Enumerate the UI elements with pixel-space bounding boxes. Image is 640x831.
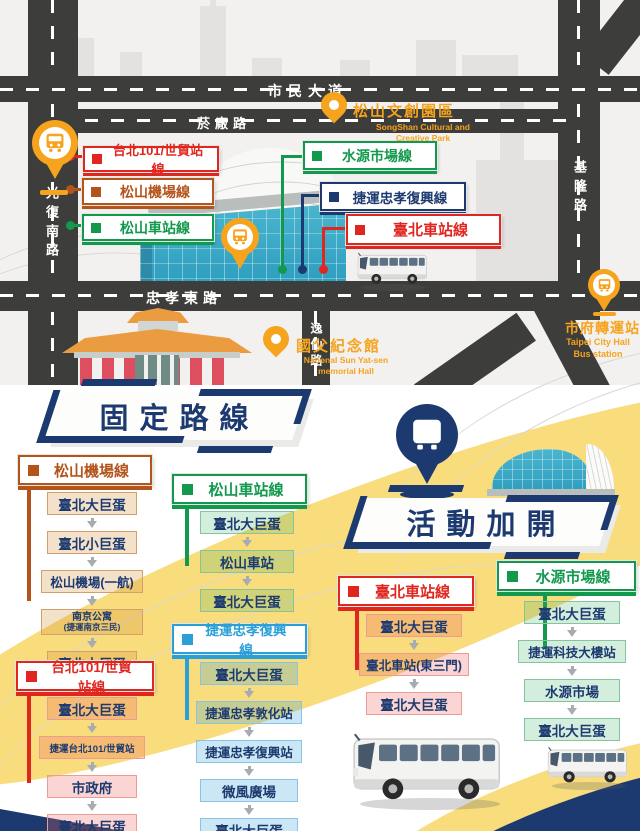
coach-bus-large xyxy=(350,728,502,804)
down-arrow-icon xyxy=(243,766,255,776)
bus-icon xyxy=(231,228,249,246)
down-arrow-icon xyxy=(241,576,253,586)
map-label-taipei101: 台北101/世貿站線 xyxy=(83,146,219,172)
stop-chip: 捷運台北101/世貿站 xyxy=(39,736,145,759)
title-slash xyxy=(388,485,464,492)
poi-name-cityhall: 市府轉運站 xyxy=(565,318,640,338)
stop-chip: 臺北大巨蛋 xyxy=(366,692,462,715)
route-bullet xyxy=(91,187,101,197)
route-stops-shuiyuan: 臺北大巨蛋 捷運科技大樓站 水源市場 臺北大巨蛋 xyxy=(518,601,626,741)
route-bullet xyxy=(28,465,39,476)
down-arrow-icon xyxy=(408,640,420,650)
poi-name-sunyatsen: 國父紀念館 xyxy=(296,335,381,356)
down-arrow-icon xyxy=(86,723,98,733)
stop-chip: 市政府 xyxy=(47,775,137,798)
poi-en: Bus station xyxy=(556,349,640,359)
poi-name-songshan-park: 松山文創園區 xyxy=(353,100,455,121)
map-section: 市民大道 菸廠路 光復南路 忠孝東路 基隆路 逸仙路 台北101/世貿站線 松山… xyxy=(0,0,640,385)
map-label-songshan-station: 松山車站線 xyxy=(82,214,214,241)
route-bullet xyxy=(91,223,101,233)
route-line xyxy=(27,687,31,783)
route-line xyxy=(27,481,31,601)
down-arrow-icon xyxy=(408,679,420,689)
map-label-airport: 松山機場線 xyxy=(82,178,214,205)
stop-chip: 臺北大巨蛋 xyxy=(200,589,294,612)
poi-en: memorial Hall xyxy=(290,366,402,376)
bus-stop-pin-dome xyxy=(221,218,259,272)
bus-stop-pin-guangfu xyxy=(32,120,78,186)
stop-chip: 臺北大巨蛋 xyxy=(524,601,620,624)
route-bullet xyxy=(355,225,365,235)
down-arrow-icon xyxy=(243,688,255,698)
route-bullet xyxy=(329,192,339,202)
bus-icon xyxy=(597,278,612,293)
stop-dot xyxy=(278,265,287,274)
road-keelung-dash xyxy=(577,0,580,300)
down-arrow-icon xyxy=(86,801,98,811)
route-stops-airport: 臺北大巨蛋 臺北小巨蛋 松山機場(一航) 南京公寓(捷運南京三民) 臺北大巨蛋 xyxy=(40,492,144,674)
route-line xyxy=(185,650,189,720)
fixed-routes-title: 固定路線 xyxy=(48,392,300,440)
down-arrow-icon xyxy=(86,518,98,528)
stop-chip: 臺北大巨蛋 xyxy=(200,818,298,831)
bus-icon xyxy=(409,417,445,453)
title-slash xyxy=(81,379,157,386)
stop-dot xyxy=(298,265,307,274)
down-arrow-icon xyxy=(243,805,255,815)
road-label-keelung: 基隆路 xyxy=(570,160,589,217)
stop-chip: 捷運科技大樓站 xyxy=(518,640,626,663)
route-stops-songshan-station: 臺北大巨蛋 松山車站 臺北大巨蛋 xyxy=(197,511,297,612)
poi-en: SongShan Cultural and xyxy=(350,122,496,132)
skyline-spire xyxy=(210,0,216,12)
down-arrow-icon xyxy=(86,762,98,772)
stop-chip: 南京公寓(捷運南京三民) xyxy=(41,609,143,635)
stop-chip: 臺北大巨蛋 xyxy=(200,511,294,534)
connector xyxy=(281,155,304,158)
map-label-shuiyuan: 水源市場線 xyxy=(303,141,437,170)
poi-pin-sunyatsen xyxy=(258,321,295,358)
road-label-tobacco: 菸廠路 xyxy=(197,113,251,132)
route-header-taipei101: 台北101/世貿站線 xyxy=(16,661,154,691)
stop-chip: 松山機場(一航) xyxy=(41,570,143,593)
coach-bus-small xyxy=(546,744,628,785)
route-bullet xyxy=(507,571,518,582)
route-header-airport: 松山機場線 xyxy=(18,455,152,485)
title-slash xyxy=(197,446,273,453)
road-diagonal-left xyxy=(414,313,536,385)
stop-chip: 臺北大巨蛋 xyxy=(47,492,137,515)
stop-chip: 微風廣場 xyxy=(200,779,298,802)
stop-dash xyxy=(40,190,68,195)
stop-chip: 臺北大巨蛋 xyxy=(47,814,137,831)
connector xyxy=(301,194,321,197)
poi-en: Creative Park xyxy=(350,133,496,143)
road-label-guangfu: 光復南路 xyxy=(42,186,61,262)
route-bullet xyxy=(312,151,322,161)
stop-chip: 臺北車站(東三門) xyxy=(359,653,469,676)
down-arrow-icon xyxy=(86,638,98,648)
map-label-taipei-station: 臺北車站線 xyxy=(346,214,501,245)
poi-en: Taipei City Hall xyxy=(556,337,640,347)
section-title: 活動加開 xyxy=(355,498,607,546)
stop-chip: 臺北大巨蛋 xyxy=(366,614,462,637)
road-zhongxiao-dash xyxy=(0,294,640,297)
down-arrow-icon xyxy=(566,627,578,637)
stop-chip: 水源市場 xyxy=(524,679,620,702)
route-header-mrt-fuxing: 捷運忠孝復興線 xyxy=(172,624,307,654)
route-stops-taipei-station: 臺北大巨蛋 臺北車站(東三門) 臺北大巨蛋 xyxy=(359,614,469,715)
down-arrow-icon xyxy=(566,705,578,715)
stop-chip: 臺北大巨蛋 xyxy=(524,718,620,741)
connector xyxy=(301,194,304,268)
road-label-zhongxiao: 忠孝東路 xyxy=(146,288,222,308)
route-bullet xyxy=(26,671,37,682)
route-stops-taipei101: 臺北大巨蛋 捷運台北101/世貿站 市政府 臺北大巨蛋 xyxy=(40,697,144,831)
connector xyxy=(322,227,325,268)
transit-infographic: 市民大道 菸廠路 光復南路 忠孝東路 基隆路 逸仙路 台北101/世貿站線 松山… xyxy=(0,0,640,831)
route-line xyxy=(185,500,189,566)
stop-chip: 臺北大巨蛋 xyxy=(200,662,298,685)
event-routes-title: 活動加開 xyxy=(355,498,607,546)
coach-bus xyxy=(356,250,428,286)
route-header-songshan-station: 松山車站線 xyxy=(172,474,307,504)
down-arrow-icon xyxy=(243,727,255,737)
bus-stop-pin-cityhall xyxy=(588,269,620,315)
stop-dot xyxy=(66,221,75,230)
stop-chip: 捷運忠孝復興站 xyxy=(196,740,302,763)
down-arrow-icon xyxy=(86,557,98,567)
down-arrow-icon xyxy=(86,596,98,606)
route-stops-mrt-fuxing: 臺北大巨蛋 捷運忠孝敦化站 捷運忠孝復興站 微風廣場 臺北大巨蛋 xyxy=(195,662,303,831)
title-slash xyxy=(504,552,580,559)
route-bullet xyxy=(182,484,193,495)
down-arrow-icon xyxy=(241,537,253,547)
stop-dot xyxy=(319,265,328,274)
route-header-taipei-station: 臺北車站線 xyxy=(338,576,474,606)
connector xyxy=(281,155,284,268)
route-header-shuiyuan: 水源市場線 xyxy=(497,561,636,591)
stop-chip: 捷運忠孝敦化站 xyxy=(196,701,302,724)
bus-icon xyxy=(44,132,66,154)
down-arrow-icon xyxy=(566,666,578,676)
route-bullet xyxy=(92,154,102,164)
connector xyxy=(322,227,347,230)
stop-chip: 松山車站 xyxy=(200,550,294,573)
stop-chip: 臺北大巨蛋 xyxy=(47,697,137,720)
section-title: 固定路線 xyxy=(48,392,300,440)
route-bullet xyxy=(348,586,359,597)
poi-en: National Sun Yat-sen xyxy=(290,355,402,365)
route-bullet xyxy=(182,634,193,645)
map-label-mrt-fuxing: 捷運忠孝復興線 xyxy=(320,182,466,211)
stop-chip: 臺北小巨蛋 xyxy=(47,531,137,554)
